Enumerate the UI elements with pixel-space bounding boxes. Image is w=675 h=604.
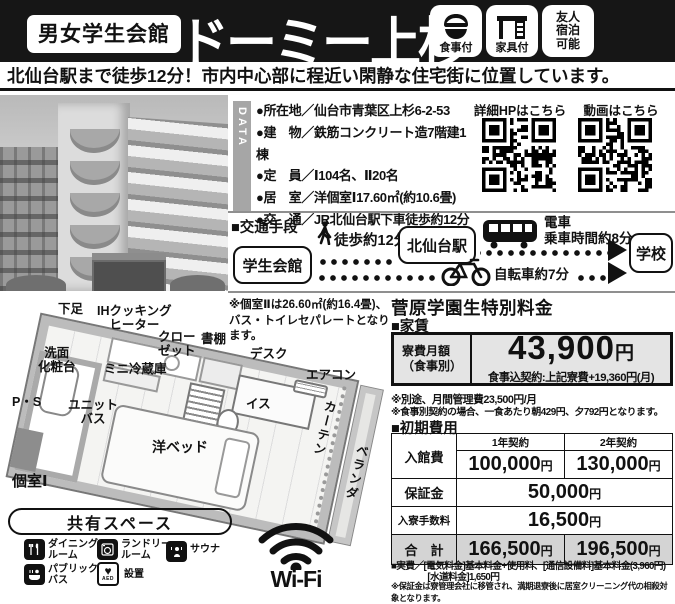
label-pipe-space: P・S xyxy=(12,396,41,410)
label-bed: 洋ベッド xyxy=(152,441,208,455)
divider xyxy=(0,88,675,91)
feature-meals: 食事付 xyxy=(430,5,482,57)
data-item-address: ●所在地／仙台市青葉区上杉6-2-53 xyxy=(256,100,471,122)
subtitle: 北仙台駅まで徒歩12分！市内中心部に程近い閑静な住宅街に位置しています。 xyxy=(7,63,672,88)
route-dots xyxy=(480,250,608,256)
label-fridge: ミニ冷蔵庫 xyxy=(104,363,167,377)
admission-1yr: 100,000円 xyxy=(457,451,565,479)
building-photo xyxy=(0,95,228,291)
wifi-label: Wi-Fi xyxy=(256,566,336,593)
feature-friend-stay: 友人 宿泊 可能 xyxy=(542,5,594,57)
label-aircon: エアコン xyxy=(306,369,356,383)
label-washstand: 洗面 化粧台 xyxy=(38,347,76,374)
shared-space-title: 共有スペース xyxy=(8,508,232,535)
aed-icon: ♥ AED xyxy=(97,562,119,586)
label-bookshelf: 書棚 xyxy=(201,333,226,347)
data-item-capacity: ●定 員／Ⅰ104名、Ⅱ20名 xyxy=(256,165,471,187)
gender-badge: 男女学生会館 xyxy=(27,15,181,53)
route-dots xyxy=(576,275,608,281)
route-dots xyxy=(316,259,396,265)
train-icon xyxy=(482,219,538,249)
route-dots xyxy=(316,275,438,281)
data-section-tab: DATA xyxy=(233,101,251,211)
divider xyxy=(228,211,675,213)
data-item-room: ●居 室／洋個室Ⅰ17.60㎡(約10.6畳) xyxy=(256,187,471,209)
photo-left-building xyxy=(0,147,60,291)
label-closet: クロー ゼット xyxy=(158,331,196,358)
photo-entrance xyxy=(92,253,166,291)
qr-code-hp xyxy=(482,118,556,192)
row-deposit-label: 保証金 xyxy=(392,479,457,507)
col-2yr: 2年契約 xyxy=(565,434,673,451)
rent-table: 寮費月額 （食事別） 43,900円 食事込契約:上記寮費+19,360円(月) xyxy=(391,332,673,386)
qr-video-label: 動画はこちら xyxy=(572,100,670,119)
wifi-icon xyxy=(254,520,338,570)
room-type-label: 個室Ⅰ xyxy=(12,475,48,489)
laundry-icon xyxy=(97,539,118,560)
data-item-building: ●建 物／鉄筋コンクリート造7階建1棟 xyxy=(256,122,471,166)
public-bath-label: パブリック バス xyxy=(48,565,98,586)
col-1yr: 1年契約 xyxy=(457,434,565,451)
photo-shrub xyxy=(170,275,225,291)
photo-shrub xyxy=(6,275,66,291)
sauna-icon xyxy=(166,541,187,562)
feature-meals-label: 食事付 xyxy=(440,42,473,55)
row-admission-label: 入館費 xyxy=(392,434,457,479)
qr-code-video xyxy=(578,118,652,192)
rice-bowl-icon xyxy=(441,13,471,41)
initial-cost-table: 入館費 1年契約 2年契約 100,000円 130,000円 保証金 50,0… xyxy=(391,433,673,565)
admission-2yr: 130,000円 xyxy=(565,451,673,479)
feature-friend-stay-label: 友人 宿泊 可能 xyxy=(556,11,580,52)
laundry-label: ランドリー ルーム xyxy=(121,540,171,561)
room2-note: ※個室Ⅱは26.60㎡(約16.4畳)、 バス・トイレセパレートとなります。 xyxy=(229,298,394,345)
dining-label: ダイニング ルーム xyxy=(48,540,98,561)
transport-heading: ■交通手段 xyxy=(231,216,298,237)
desk-icon xyxy=(496,13,528,41)
rent-amount-cell: 43,900円 食事込契約:上記寮費+19,360円(月) xyxy=(472,335,670,383)
row-fee-label: 入寮手数料 xyxy=(392,507,457,535)
arrow-right-icon xyxy=(608,262,627,284)
header-bar: 男女学生会館 ドーミー上杉 食事付 家具付 友人 宿泊 可能 xyxy=(0,0,675,62)
rent-row-label: 寮費月額 （食事別） xyxy=(394,335,472,383)
label-ih-cooker: IHクッキング ヒーター xyxy=(97,305,172,332)
rent-meal-note: 食事込契約:上記寮費+19,360円(月) xyxy=(488,369,654,385)
rent-amount: 43,900円 xyxy=(508,333,634,369)
feature-furnished-label: 家具付 xyxy=(496,42,529,55)
feature-furnished: 家具付 xyxy=(486,5,538,57)
arrow-right-icon xyxy=(608,239,627,261)
walking-person-icon xyxy=(317,221,332,245)
bicycle-icon xyxy=(440,256,492,286)
bicycle-time: 自転車約7分 xyxy=(494,263,569,283)
public-bath-icon xyxy=(24,564,45,585)
sauna-label: サウナ xyxy=(190,545,220,556)
deposit-note: ※保証金は寮管理会社に移管され、満期退寮後に居室クリーニング代の相殺対象となりま… xyxy=(391,580,675,604)
label-desk: デスク xyxy=(250,348,288,362)
transport-destination: 学校 xyxy=(629,233,673,273)
transport-origin: 学生会館 xyxy=(233,246,312,284)
deposit-value: 50,000円 xyxy=(457,479,673,507)
label-chair: イス xyxy=(246,398,271,412)
label-unit-bath: ユニット バス xyxy=(68,399,118,426)
dining-icon xyxy=(24,539,45,560)
qr-hp-label: 詳細HPはこちら xyxy=(468,100,572,119)
fee-value: 16,500円 xyxy=(457,507,673,535)
divider xyxy=(228,291,675,293)
aed-label: 設置 xyxy=(124,570,144,581)
label-shoe-area: 下足 xyxy=(58,303,83,317)
rent-note-2: ※食事別契約の場合、一食あたり朝429円、夕792円となります。 xyxy=(391,404,663,418)
